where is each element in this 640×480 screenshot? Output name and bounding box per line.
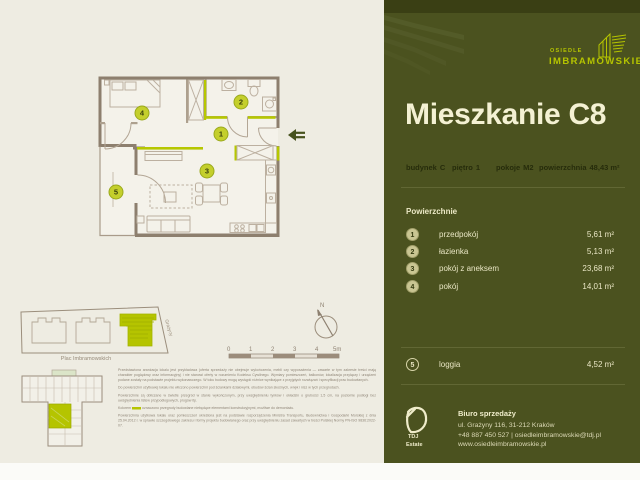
- divider: [401, 187, 625, 188]
- svg-text:5: 5: [114, 188, 118, 197]
- sales-office-contact: Biuro sprzedaży ul. Grażyny 116, 31-212 …: [458, 409, 628, 451]
- svg-text:5m: 5m: [333, 347, 341, 353]
- tdj-label: TDJ: [408, 434, 418, 440]
- brand-imbramowskie-label: IMBRAMOWSKIE: [549, 56, 640, 67]
- info-value: 1: [476, 163, 480, 172]
- svg-text:N: N: [320, 303, 324, 309]
- contact-heading: Biuro sprzedaży: [458, 409, 628, 418]
- room-row-pokoj-z-aneksem: 3 pokój z aneksem 23,68 m²: [406, 261, 614, 277]
- contact-phone-email[interactable]: +48 887 450 527 | osiedleimbramowskie@td…: [458, 432, 628, 439]
- building-a: [32, 318, 66, 343]
- divider: [401, 384, 625, 385]
- room-marker-2: 2: [234, 95, 248, 109]
- areas-heading: Powierzchnie: [406, 207, 457, 216]
- building-b: [76, 318, 110, 343]
- svg-text:1: 1: [219, 130, 223, 139]
- room-number-badge: 1: [406, 228, 419, 241]
- floor-plan: 1 2 3 4 5: [90, 66, 308, 244]
- room-area-value: 4,52 m²: [587, 360, 614, 369]
- street-label: Grażyny: [164, 319, 174, 337]
- room-number-badge: 2: [406, 245, 419, 258]
- room-row-przedpokoj: 1 przedpokój 5,61 m²: [406, 227, 614, 243]
- info-panel: OSIEDLE IMBRAMOWSKIE Mieszkanie C8 budyn…: [384, 0, 640, 463]
- svg-text:3: 3: [205, 167, 209, 176]
- disclaimer-block: Przedstawiona aranżacja lokalu jest przy…: [118, 368, 376, 460]
- estate-label: Estate: [406, 442, 423, 448]
- room-number-badge: 5: [406, 358, 419, 371]
- room-number-badge: 4: [406, 280, 419, 293]
- room-area-value: 14,01 m²: [582, 282, 614, 291]
- osiedle-logo-icon: [596, 31, 628, 58]
- disclaimer-text: Kolorem: [118, 406, 131, 410]
- info-building: budynekC: [406, 163, 445, 172]
- info-label: pokoje: [496, 163, 520, 172]
- room-label: łazienka: [439, 247, 468, 256]
- room-row-loggia: 5 loggia 4,52 m²: [406, 357, 614, 373]
- disclaimer-paragraph: Koloremoznaczono przegrody budowlane nie…: [118, 406, 376, 411]
- svg-text:2: 2: [271, 347, 275, 353]
- info-floor: piętro1: [452, 163, 480, 172]
- building-key-plan: [18, 366, 110, 450]
- room-marker-5: 5: [109, 185, 123, 199]
- scale-bar: 0 1 2 3 4 5m: [226, 344, 344, 362]
- entrance-arrow-icon: [288, 129, 305, 141]
- room-number-badge: 3: [406, 262, 419, 275]
- room-area-value: 23,68 m²: [582, 264, 614, 273]
- contact-address: ul. Grażyny 116, 31-212 Kraków: [458, 422, 628, 429]
- info-area: powierzchnia48,43 m²: [539, 163, 620, 172]
- tdj-estate-logo: [404, 404, 430, 436]
- svg-text:2: 2: [239, 98, 243, 107]
- room-label: pokój z aneksem: [439, 264, 499, 273]
- apartment-info-row: budynekC piętro1 pokojeM2 powierzchnia48…: [384, 163, 640, 177]
- brand-block: OSIEDLE IMBRAMOWSKIE: [384, 0, 640, 80]
- disclaimer-paragraph: Powierzchnie są obliczane w świetle prze…: [118, 393, 376, 403]
- disclaimer-paragraph: Przedstawiona aranżacja lokalu jest przy…: [118, 368, 376, 383]
- plan-region: 1 2 3 4 5: [0, 0, 384, 463]
- info-value: 48,43 m²: [590, 163, 620, 172]
- info-value: C: [440, 163, 445, 172]
- room-area-value: 5,61 m²: [587, 230, 614, 239]
- room-marker-1: 1: [214, 127, 228, 141]
- brand-osiedle-label: OSIEDLE: [550, 48, 583, 54]
- room-label: loggia: [439, 360, 460, 369]
- room-row-lazienka: 2 łazienka 5,13 m²: [406, 244, 614, 260]
- room-area-value: 5,13 m²: [587, 247, 614, 256]
- svg-text:3: 3: [293, 347, 297, 353]
- scale-labels: 0 1 2 3 4 5m: [227, 347, 341, 353]
- info-rooms: pokojeM2: [496, 163, 534, 172]
- room-marker-4: 4: [135, 106, 149, 120]
- disclaimer-paragraph: Powierzchnia użytkowa lokalu oraz pomies…: [118, 413, 376, 428]
- info-label: powierzchnia: [539, 163, 587, 172]
- key-highlighted-unit: [49, 404, 71, 428]
- apartment-card-page: 1 2 3 4 5: [0, 0, 640, 480]
- room-label: pokój: [439, 282, 458, 291]
- room-marker-3: 3: [200, 164, 214, 178]
- building-c-highlighted: [120, 314, 156, 346]
- svg-text:0: 0: [227, 347, 231, 353]
- site-plan-label: Plac Imbramowskich: [26, 356, 146, 362]
- svg-text:4: 4: [315, 347, 319, 353]
- compass-icon: N: [306, 300, 346, 348]
- disclaimer-paragraph: Do powierzchni użytkowej lokalu nie wlic…: [118, 386, 376, 391]
- room-row-pokoj: 4 pokój 14,01 m²: [406, 279, 614, 295]
- svg-text:1: 1: [249, 347, 253, 353]
- info-value: M2: [523, 163, 533, 172]
- page-title: Mieszkanie C8: [405, 98, 606, 132]
- disclaimer-text: oznaczono przegrody budowlane niebędące …: [142, 406, 294, 410]
- room-label: przedpokój: [439, 230, 478, 239]
- info-label: budynek: [406, 163, 437, 172]
- contact-website[interactable]: www.osiedleimbramowskie.pl: [458, 441, 628, 448]
- divider: [401, 347, 625, 348]
- info-label: piętro: [452, 163, 473, 172]
- lime-wall-swatch: [132, 407, 141, 410]
